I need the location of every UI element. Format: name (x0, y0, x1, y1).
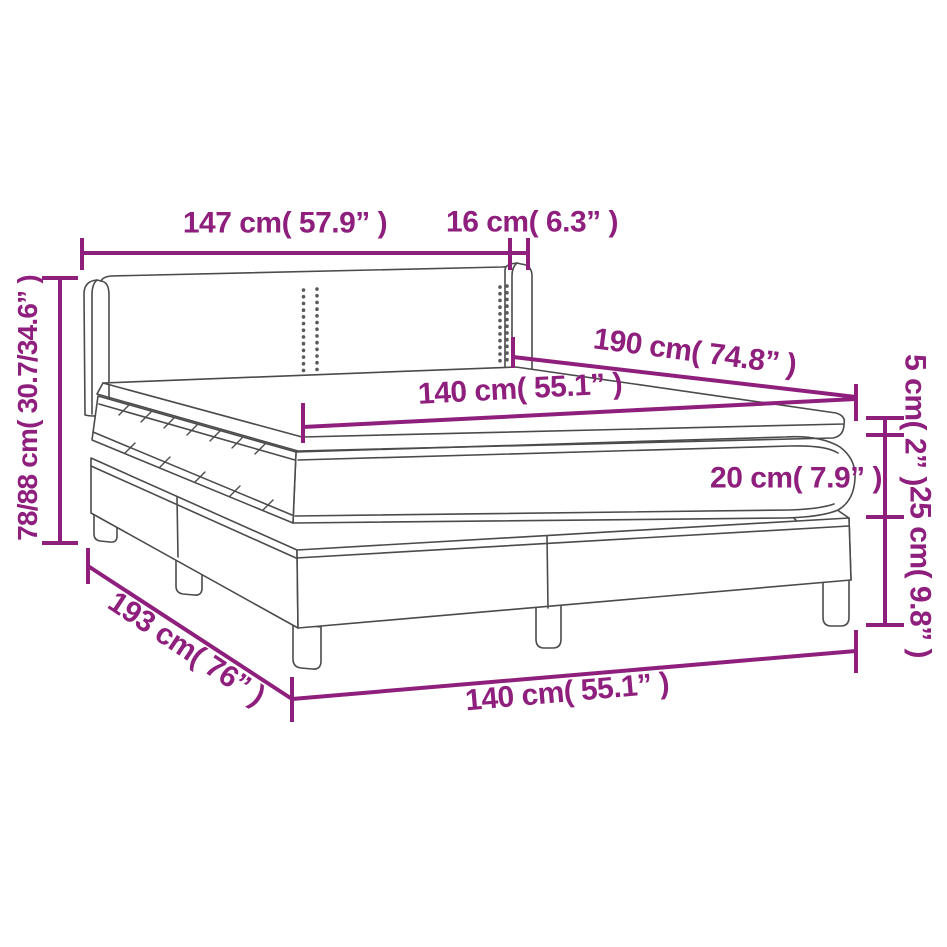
base-seam-left (177, 497, 178, 557)
diagram-canvas: 147 cm( 57.9” ) 16 cm( 6.3” ) 78/88 cm( … (0, 0, 947, 947)
leg-front-corner (293, 624, 321, 669)
bed-dimension-diagram: 147 cm( 57.9” ) 16 cm( 6.3” ) 78/88 cm( … (0, 0, 947, 947)
label-total-height: 78/88 cm( 30.7/34.6” ) (12, 275, 43, 541)
label-bed-length: 190 cm( 74.8” ) (591, 322, 798, 381)
headboard-panel (100, 267, 515, 384)
label-mattress-height: 20 cm( 7.9” ) (710, 462, 882, 495)
dim-line-heights-right (866, 418, 904, 625)
label-headboard-width: 147 cm( 57.9” ) (183, 207, 387, 240)
base-foot-face (297, 518, 851, 628)
label-headboard-depth: 16 cm( 6.3” ) (446, 206, 618, 239)
dim-line-headboard-width (82, 238, 528, 270)
label-topper-height: 5 cm( 2” ) (899, 354, 932, 486)
label-total-length: 193 cm( 76” ) (102, 585, 271, 712)
dim-line-total-height (42, 278, 78, 543)
base-seam-foot (547, 536, 548, 608)
label-base-height: 25 cm( 9.8” ) (904, 486, 937, 658)
